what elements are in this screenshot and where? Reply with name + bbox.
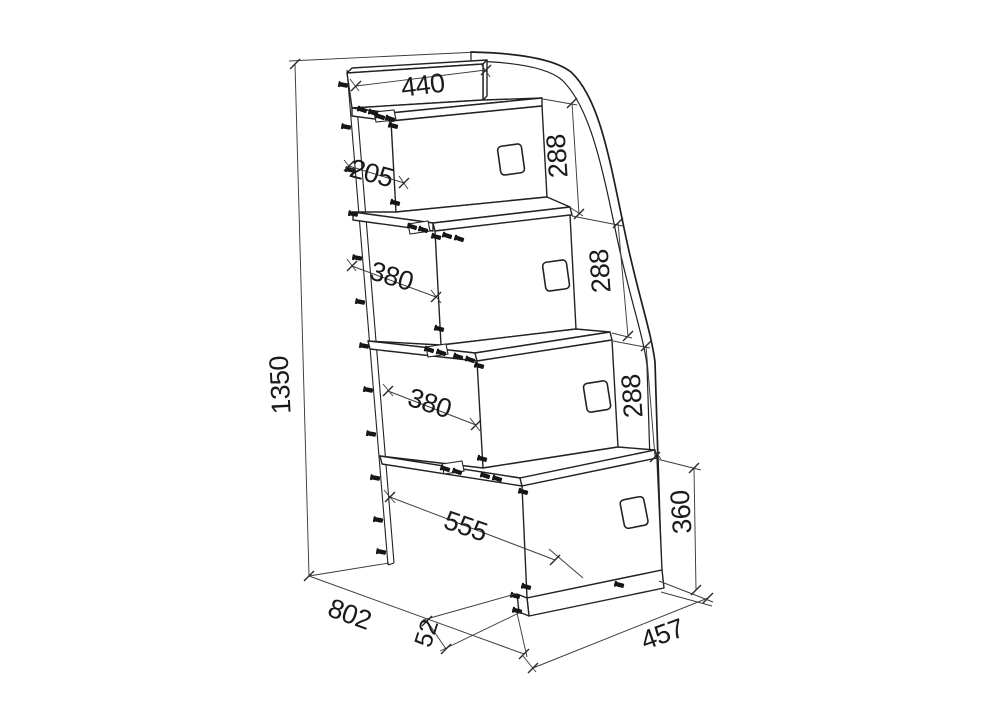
handle-cutout-1 [497,143,525,175]
dim-label-360: 360 [665,489,698,535]
handle-cutout-3 [583,380,611,412]
step-box-3 [368,329,618,468]
screw-icon [338,81,349,89]
handle-cutout-4 [620,496,649,529]
screw-icon [341,123,352,131]
screw-icon [376,548,387,556]
left-post [347,70,394,565]
screw-icon [366,430,377,438]
dim-plinth-height: 52 [409,594,521,654]
screw-icon [363,386,374,394]
dim-total-height: 1350 [264,59,314,581]
dim-label-288-2: 288 [584,248,617,294]
dim-rise-2: 288 [572,216,633,341]
handle-cutout-2 [542,259,570,291]
dim-label-380-2: 380 [404,382,455,424]
screw-icon [510,592,521,600]
step-box-4 [380,447,664,616]
dim-bottom-box-height: 360 [657,459,713,602]
dim-label-802: 802 [324,593,375,636]
screw-icon [373,516,384,524]
dim-step-depth-a: 380 [347,255,441,303]
dim-label-380-1: 380 [366,255,416,296]
dim-label-52: 52 [409,616,444,650]
dim-label-555: 555 [440,505,491,548]
screw-icon [355,298,366,306]
dim-label-205: 205 [347,153,397,193]
dim-step-depth-b: 380 [383,382,481,431]
dim-label-1350: 1350 [264,355,297,415]
dim-label-288-3: 288 [616,373,649,419]
dim-label-457: 457 [637,613,688,656]
drawing-page: 1350 802 52 457 360 [0,0,1000,707]
screw-icon [370,474,381,482]
drawing-canvas: 1350 802 52 457 360 [0,0,1000,707]
dim-label-440: 440 [399,68,446,103]
screw-icon [352,254,363,262]
dim-label-288-1: 288 [541,133,574,179]
